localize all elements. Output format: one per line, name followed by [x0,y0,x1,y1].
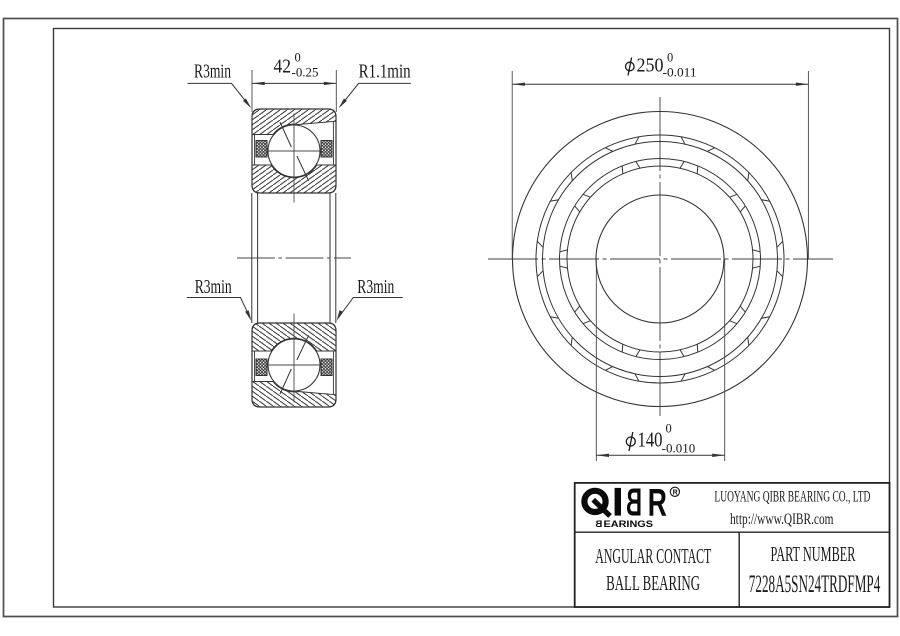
svg-text:BALL BEARING: BALL BEARING [606,571,700,595]
svg-text:7228A5SN24TRDFMP4: 7228A5SN24TRDFMP4 [749,571,881,598]
svg-text:-0.011: -0.011 [663,66,697,80]
svg-text:B: B [595,519,602,530]
svg-text:R3min: R3min [357,277,394,298]
svg-text:B: B [626,480,642,524]
svg-text:http://www.QIBR.com: http://www.QIBR.com [730,511,834,528]
svg-text:ANGULAR CONTACT: ANGULAR CONTACT [595,544,711,568]
svg-text:-0.25: -0.25 [292,65,319,79]
svg-text:42: 42 [274,56,292,77]
svg-text:0: 0 [667,51,673,65]
svg-text:0: 0 [666,422,672,436]
svg-text:R: R [673,490,678,497]
svg-text:250: 250 [637,56,664,77]
svg-text:R1.1min: R1.1min [359,61,411,82]
svg-text:0: 0 [295,51,301,65]
svg-text:-0.010: -0.010 [662,442,696,456]
svg-text:R3min: R3min [195,277,232,298]
svg-text:140: 140 [638,428,663,452]
svg-text:R3min: R3min [194,61,231,82]
svg-text:PART NUMBER: PART NUMBER [771,542,856,566]
svg-text:LUOYANG QIBR BEARING CO., LTD: LUOYANG QIBR BEARING CO., LTD [714,488,870,505]
svg-text:EARINGS: EARINGS [604,519,654,530]
